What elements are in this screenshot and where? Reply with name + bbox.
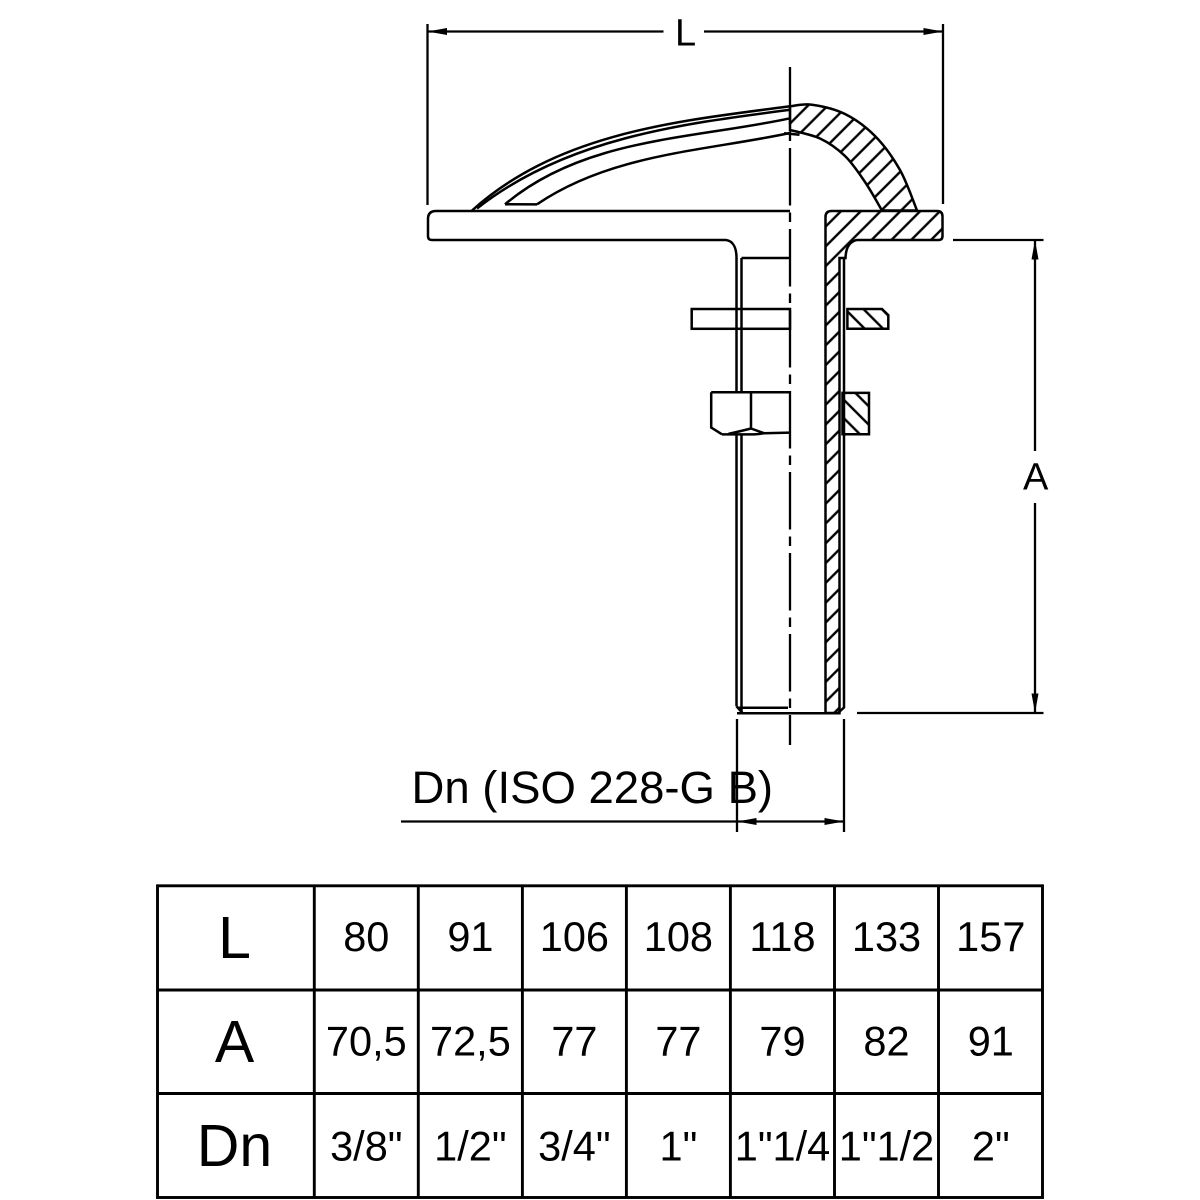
svg-text:A: A	[1023, 457, 1049, 499]
svg-text:91: 91	[447, 913, 493, 960]
svg-text:157: 157	[956, 913, 1025, 960]
svg-text:3/4": 3/4"	[538, 1123, 610, 1170]
svg-text:91: 91	[968, 1018, 1014, 1065]
svg-text:106: 106	[540, 913, 609, 960]
svg-text:77: 77	[655, 1018, 701, 1065]
svg-text:3/8": 3/8"	[330, 1123, 402, 1170]
svg-text:1"1/2: 1"1/2	[839, 1123, 935, 1170]
svg-text:2": 2"	[972, 1123, 1010, 1170]
svg-text:L: L	[218, 905, 251, 971]
svg-text:80: 80	[343, 913, 389, 960]
svg-text:1"1/4: 1"1/4	[735, 1123, 831, 1170]
svg-text:Dn: Dn	[197, 1113, 272, 1179]
svg-text:108: 108	[644, 913, 713, 960]
svg-text:79: 79	[759, 1018, 805, 1065]
svg-text:Dn (ISO 228-G B): Dn (ISO 228-G B)	[412, 762, 774, 813]
svg-text:70,5: 70,5	[326, 1018, 407, 1065]
svg-text:L: L	[675, 13, 696, 55]
svg-text:118: 118	[749, 913, 815, 960]
svg-text:A: A	[215, 1009, 255, 1075]
svg-text:72,5: 72,5	[430, 1018, 511, 1065]
svg-text:1/2": 1/2"	[434, 1123, 506, 1170]
svg-text:82: 82	[863, 1018, 909, 1065]
svg-text:133: 133	[852, 913, 921, 960]
svg-text:77: 77	[551, 1018, 597, 1065]
svg-text:1": 1"	[659, 1123, 697, 1170]
